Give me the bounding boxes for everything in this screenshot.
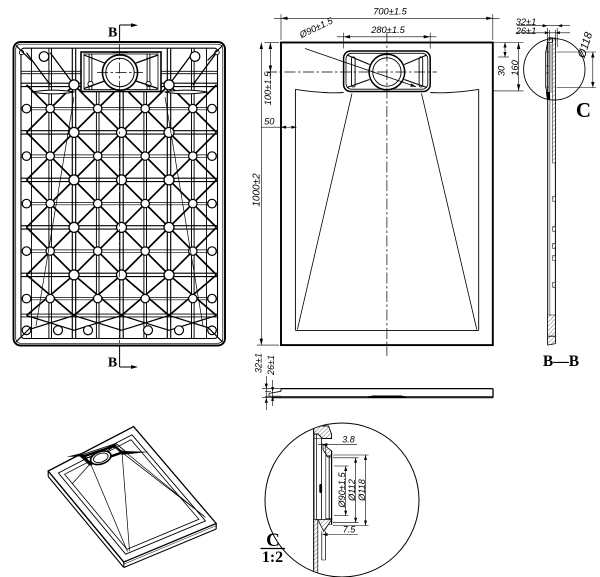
svg-text:30: 30 xyxy=(497,65,507,76)
svg-text:50: 50 xyxy=(264,117,275,127)
svg-text:Ø118: Ø118 xyxy=(357,478,367,502)
svg-text:Ø112: Ø112 xyxy=(347,479,357,502)
svg-text:3.8: 3.8 xyxy=(342,435,355,445)
svg-text:160: 160 xyxy=(510,59,520,75)
svg-text:B: B xyxy=(108,356,117,371)
svg-text:280±1.5: 280±1.5 xyxy=(370,25,405,35)
svg-text:7.5: 7.5 xyxy=(343,525,357,535)
svg-text:26±1: 26±1 xyxy=(515,26,537,36)
svg-text:100±1.5: 100±1.5 xyxy=(263,71,273,105)
svg-text:700±1.5: 700±1.5 xyxy=(373,7,407,17)
svg-text:1:2: 1:2 xyxy=(262,549,283,566)
svg-text:Ø90±1.5: Ø90±1.5 xyxy=(337,472,347,509)
svg-text:C: C xyxy=(576,98,591,122)
svg-text:32±1: 32±1 xyxy=(253,353,263,373)
svg-text:1000±2: 1000±2 xyxy=(252,173,263,207)
svg-text:B: B xyxy=(108,26,117,41)
svg-text:26±1: 26±1 xyxy=(266,355,276,376)
svg-text:B—B: B—B xyxy=(543,353,579,370)
